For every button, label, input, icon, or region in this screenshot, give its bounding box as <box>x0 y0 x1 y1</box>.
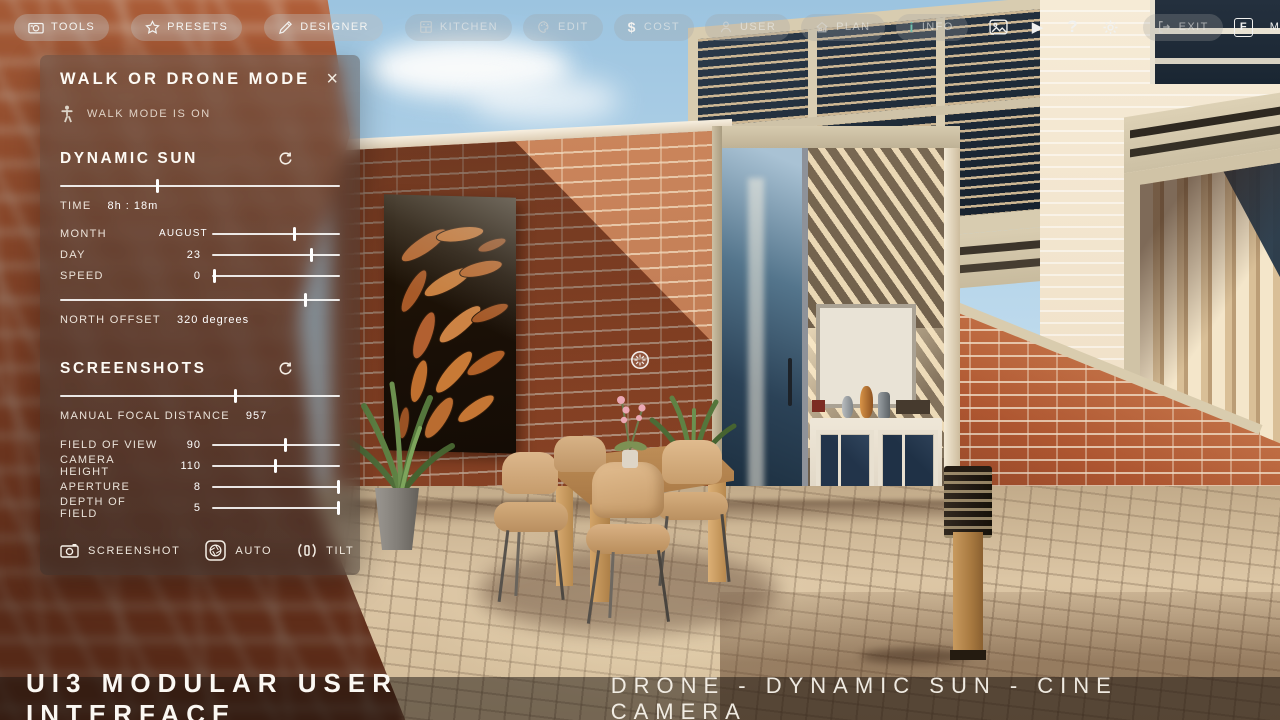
lamp-base <box>950 650 986 660</box>
depth-of-field-slider-handle[interactable] <box>337 501 340 515</box>
screenshot-button[interactable]: SCREENSHOT <box>60 543 180 558</box>
ui-title: UI3 MODULAR USER INTERFACE <box>26 668 611 720</box>
time-label: TIME <box>60 200 91 212</box>
user-icon <box>719 20 733 34</box>
day-slider-handle[interactable] <box>310 248 313 262</box>
chair-leg <box>657 550 670 622</box>
chair-leg <box>587 550 600 624</box>
field-of-view-slider[interactable] <box>212 444 340 446</box>
focal-distance-label: MANUAL FOCAL DISTANCE <box>60 410 230 422</box>
play-icon[interactable]: ▶ <box>1032 18 1044 36</box>
info-icon: i <box>910 20 915 34</box>
info-button[interactable]: i INFO <box>896 14 968 41</box>
camera-icon <box>60 543 79 558</box>
bottom-status-bar: UI3 MODULAR USER INTERFACE DRONE - DYNAM… <box>0 677 1280 720</box>
aperture-label: APERTURE <box>60 481 130 493</box>
close-icon[interactable]: × <box>326 69 338 89</box>
walk-drone-panel: WALK OR DRONE MODE × WALK MODE IS ON DYN… <box>40 55 360 575</box>
reset-screenshots-icon[interactable] <box>277 361 294 378</box>
tools-button[interactable]: TOOLS <box>14 14 109 41</box>
red-box <box>812 400 825 412</box>
steel-canister <box>878 392 890 418</box>
door-head-frame <box>712 126 960 148</box>
time-slider[interactable] <box>60 185 340 187</box>
depth-of-field-label: DEPTH OF FIELD <box>60 496 162 520</box>
window-bar <box>1155 58 1280 64</box>
north-offset-slider[interactable] <box>60 299 340 301</box>
user-label: USER <box>740 21 776 33</box>
kitchen-icon <box>419 20 433 34</box>
time-value: 8h : 18m <box>107 200 158 212</box>
focal-distance-slider[interactable] <box>60 395 340 397</box>
aperture-value: 8 <box>159 481 201 493</box>
field-of-view-label: FIELD OF VIEW <box>60 439 158 451</box>
depth-of-field-slider[interactable] <box>212 507 340 509</box>
auto-button[interactable]: AUTO <box>205 540 272 561</box>
star-icon <box>145 20 160 35</box>
application-window: TOOLS PRESETS DESIGNER KITCHEN <box>0 0 1280 720</box>
auto-button-label: AUTO <box>235 545 272 557</box>
time-slider-handle[interactable] <box>156 179 159 193</box>
edit-label: EDIT <box>558 21 589 33</box>
north-offset-slider-handle[interactable] <box>304 293 307 307</box>
walk-person-icon <box>60 105 74 123</box>
image-icon[interactable] <box>989 19 1008 35</box>
camera-height-slider[interactable] <box>212 465 340 467</box>
focal-distance-value: 957 <box>246 410 267 422</box>
settings-gear-icon[interactable] <box>1102 19 1119 36</box>
top-toolbar: TOOLS PRESETS DESIGNER KITCHEN <box>0 12 1280 42</box>
exit-label: EXIT <box>1179 21 1209 33</box>
aperture-auto-icon <box>205 540 226 561</box>
menu-button[interactable]: MENU <box>1270 21 1280 33</box>
lamp-head <box>944 466 992 538</box>
tilt-button[interactable]: TILT <box>297 542 354 559</box>
designer-button[interactable]: DESIGNER <box>264 14 383 41</box>
cabinet-mullion <box>838 430 841 492</box>
plant-leaves <box>346 376 456 496</box>
screenshot-tool-icon <box>28 21 44 34</box>
info-label: INFO <box>922 21 954 33</box>
lamp-post <box>953 532 983 652</box>
chair-seat <box>494 502 568 532</box>
tilt-icon <box>297 542 317 559</box>
orchid-plant <box>598 388 662 472</box>
day-label: DAY <box>60 249 86 261</box>
cloud <box>470 78 620 122</box>
pencil-icon <box>278 20 293 35</box>
month-label: MONTH <box>60 228 107 240</box>
designer-label: DESIGNER <box>300 21 369 33</box>
dynamic-sun-title: DYNAMIC SUN <box>60 150 198 168</box>
chair-leg <box>608 552 614 618</box>
focal-distance-slider-handle[interactable] <box>234 389 237 403</box>
dollar-icon: $ <box>628 20 637 34</box>
field-of-view-slider-handle[interactable] <box>284 438 287 452</box>
speed-slider[interactable] <box>212 275 340 277</box>
gray-vase <box>842 396 853 418</box>
exit-icon <box>1157 20 1171 34</box>
potted-plant <box>346 376 456 556</box>
cabinet-mullion <box>902 430 905 492</box>
plant-pot <box>372 488 422 550</box>
presets-button[interactable]: PRESETS <box>131 14 242 41</box>
amber-vase <box>860 386 873 418</box>
plan-button[interactable]: PLAN <box>801 14 884 41</box>
user-button[interactable]: USER <box>705 14 790 41</box>
door-handle <box>788 358 792 406</box>
chair-leg <box>554 530 564 600</box>
walk-mode-status: WALK MODE IS ON <box>87 108 211 120</box>
aperture-slider[interactable] <box>212 486 340 488</box>
presets-label: PRESETS <box>167 21 228 33</box>
dark-box <box>896 400 930 414</box>
north-offset-label: NORTH OFFSET <box>60 314 161 326</box>
edit-button[interactable]: EDIT <box>523 14 603 41</box>
cost-label: COST <box>644 21 680 33</box>
chair <box>580 462 676 624</box>
kitchen-button[interactable]: KITCHEN <box>405 14 512 41</box>
house-icon <box>815 20 829 34</box>
exit-button[interactable]: EXIT <box>1143 14 1223 41</box>
speed-value: 0 <box>159 270 201 282</box>
panel-title: WALK OR DRONE MODE <box>60 70 310 89</box>
depth-of-field-value: 5 <box>162 502 201 514</box>
speed-slider-handle[interactable] <box>213 269 216 283</box>
screenshots-title: SCREENSHOTS <box>60 360 207 378</box>
kitchen-label: KITCHEN <box>440 21 498 33</box>
chair-leg <box>720 514 730 582</box>
chair-leg <box>498 530 509 602</box>
reset-sun-icon[interactable] <box>277 151 294 168</box>
month-slider-handle[interactable] <box>293 227 296 241</box>
tilt-button-label: TILT <box>326 545 354 557</box>
plan-label: PLAN <box>836 21 870 33</box>
orchid <box>598 388 662 472</box>
camera-height-slider-handle[interactable] <box>274 459 277 473</box>
speed-label: SPEED <box>60 270 104 282</box>
mode-subtitle: DRONE - DYNAMIC SUN - CINE CAMERA <box>611 673 1254 720</box>
bollard-lamp <box>944 466 992 662</box>
palette-icon <box>537 20 551 34</box>
day-value: 23 <box>159 249 201 261</box>
aperture-slider-handle[interactable] <box>337 480 340 494</box>
north-offset-value: 320 degrees <box>177 314 249 326</box>
camera-height-value: 110 <box>162 460 201 472</box>
month-slider[interactable] <box>212 233 340 235</box>
cost-button[interactable]: $ COST <box>614 14 694 41</box>
day-slider[interactable] <box>212 254 340 256</box>
field-of-view-value: 90 <box>159 439 201 451</box>
chair-leg <box>514 532 520 596</box>
tools-label: TOOLS <box>51 21 95 33</box>
camera-height-label: CAMERA HEIGHT <box>60 454 162 478</box>
help-icon[interactable]: ? <box>1067 17 1077 37</box>
crosshair-reticle <box>629 349 651 371</box>
fullscreen-button[interactable]: F <box>1234 18 1253 37</box>
month-value: AUGUST <box>159 228 201 239</box>
screenshot-button-label: SCREENSHOT <box>88 545 180 557</box>
